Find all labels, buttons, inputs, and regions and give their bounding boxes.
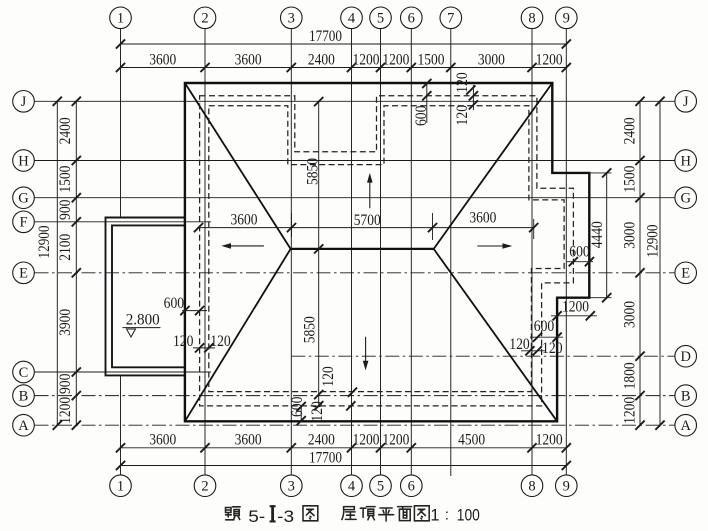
svg-text:120: 120 xyxy=(309,401,326,422)
svg-text:2: 2 xyxy=(201,479,208,495)
svg-text:1200: 1200 xyxy=(353,51,380,68)
svg-text:G: G xyxy=(18,191,29,207)
svg-text:120: 120 xyxy=(210,333,231,350)
svg-text:B: B xyxy=(681,389,691,405)
svg-text:2400: 2400 xyxy=(57,117,74,144)
svg-text:A: A xyxy=(18,418,29,434)
svg-text:3000: 3000 xyxy=(622,222,639,249)
svg-text:2100: 2100 xyxy=(57,234,74,261)
svg-text:A: A xyxy=(680,418,691,434)
svg-text:6: 6 xyxy=(408,11,415,27)
svg-text:G: G xyxy=(680,191,691,207)
svg-text:8: 8 xyxy=(528,479,535,495)
svg-text:8: 8 xyxy=(528,11,535,27)
svg-text:5: 5 xyxy=(377,11,384,27)
svg-text:3600: 3600 xyxy=(235,432,262,449)
svg-text:C: C xyxy=(19,365,29,381)
svg-text:600: 600 xyxy=(534,318,555,335)
svg-text:900: 900 xyxy=(57,374,74,395)
svg-text:4500: 4500 xyxy=(458,432,485,449)
svg-text:12900: 12900 xyxy=(645,225,662,258)
svg-text:1200: 1200 xyxy=(536,51,563,68)
svg-text:9: 9 xyxy=(563,479,570,495)
svg-text:5-: 5- xyxy=(248,507,265,526)
svg-text:D: D xyxy=(680,349,690,365)
svg-text:600: 600 xyxy=(289,397,306,418)
svg-text:B: B xyxy=(19,389,29,405)
svg-text:600: 600 xyxy=(569,243,590,260)
svg-text:E: E xyxy=(19,266,28,282)
svg-text:1200: 1200 xyxy=(353,432,380,449)
svg-text:100: 100 xyxy=(457,507,480,525)
svg-text:120: 120 xyxy=(454,72,471,93)
svg-text:2.800: 2.800 xyxy=(126,311,160,328)
svg-text:3: 3 xyxy=(288,11,295,27)
svg-text:1800: 1800 xyxy=(622,362,639,389)
svg-text:600: 600 xyxy=(164,295,185,312)
svg-text:1500: 1500 xyxy=(418,51,445,68)
svg-text:1200: 1200 xyxy=(622,397,639,424)
svg-text:2400: 2400 xyxy=(308,51,335,68)
svg-text:J: J xyxy=(21,94,27,110)
svg-text:17700: 17700 xyxy=(309,28,342,45)
svg-text:J: J xyxy=(683,94,689,110)
svg-text:120: 120 xyxy=(454,105,471,126)
svg-text:5850: 5850 xyxy=(305,158,322,185)
svg-text:1500: 1500 xyxy=(57,166,74,193)
svg-text:4: 4 xyxy=(348,479,356,495)
svg-text::: : xyxy=(445,507,449,524)
svg-text:1500: 1500 xyxy=(622,166,639,193)
svg-text:3900: 3900 xyxy=(57,309,74,336)
svg-text:120: 120 xyxy=(173,333,194,350)
svg-text:120: 120 xyxy=(542,340,563,357)
svg-text:2400: 2400 xyxy=(308,432,335,449)
svg-text:4: 4 xyxy=(348,11,356,27)
svg-text:F: F xyxy=(19,215,27,231)
svg-text:1200: 1200 xyxy=(57,397,74,424)
svg-text:3600: 3600 xyxy=(231,212,258,229)
svg-text:H: H xyxy=(18,153,29,169)
svg-text:3600: 3600 xyxy=(469,209,496,226)
svg-text:3600: 3600 xyxy=(149,432,176,449)
svg-text:3000: 3000 xyxy=(478,51,505,68)
svg-text:120: 120 xyxy=(509,336,530,353)
svg-text:1: 1 xyxy=(117,479,124,495)
svg-text:600: 600 xyxy=(413,106,430,127)
svg-text:1200: 1200 xyxy=(562,298,589,315)
svg-text:7: 7 xyxy=(447,11,454,27)
svg-text:120: 120 xyxy=(320,366,337,387)
svg-text:3600: 3600 xyxy=(149,51,176,68)
svg-text:E: E xyxy=(681,266,690,282)
svg-text:6: 6 xyxy=(408,479,415,495)
svg-text:1200: 1200 xyxy=(382,51,409,68)
svg-text:1: 1 xyxy=(430,507,439,525)
svg-text:4440: 4440 xyxy=(589,221,606,248)
svg-text:5850: 5850 xyxy=(302,316,319,343)
svg-text:3600: 3600 xyxy=(235,51,262,68)
svg-text:5: 5 xyxy=(377,479,384,495)
svg-text:900: 900 xyxy=(57,200,74,221)
svg-text:3000: 3000 xyxy=(622,301,639,328)
svg-text:12900: 12900 xyxy=(36,226,53,259)
svg-text:1200: 1200 xyxy=(536,432,563,449)
svg-text:-3: -3 xyxy=(277,507,294,526)
svg-text:H: H xyxy=(680,153,691,169)
svg-text:9: 9 xyxy=(563,11,570,27)
svg-text:2400: 2400 xyxy=(622,117,639,144)
svg-text:1200: 1200 xyxy=(382,432,409,449)
svg-text:1: 1 xyxy=(117,11,124,27)
svg-text:3: 3 xyxy=(288,479,295,495)
svg-text:2: 2 xyxy=(201,11,208,27)
svg-text:5700: 5700 xyxy=(354,212,381,229)
svg-text:17700: 17700 xyxy=(309,450,342,467)
